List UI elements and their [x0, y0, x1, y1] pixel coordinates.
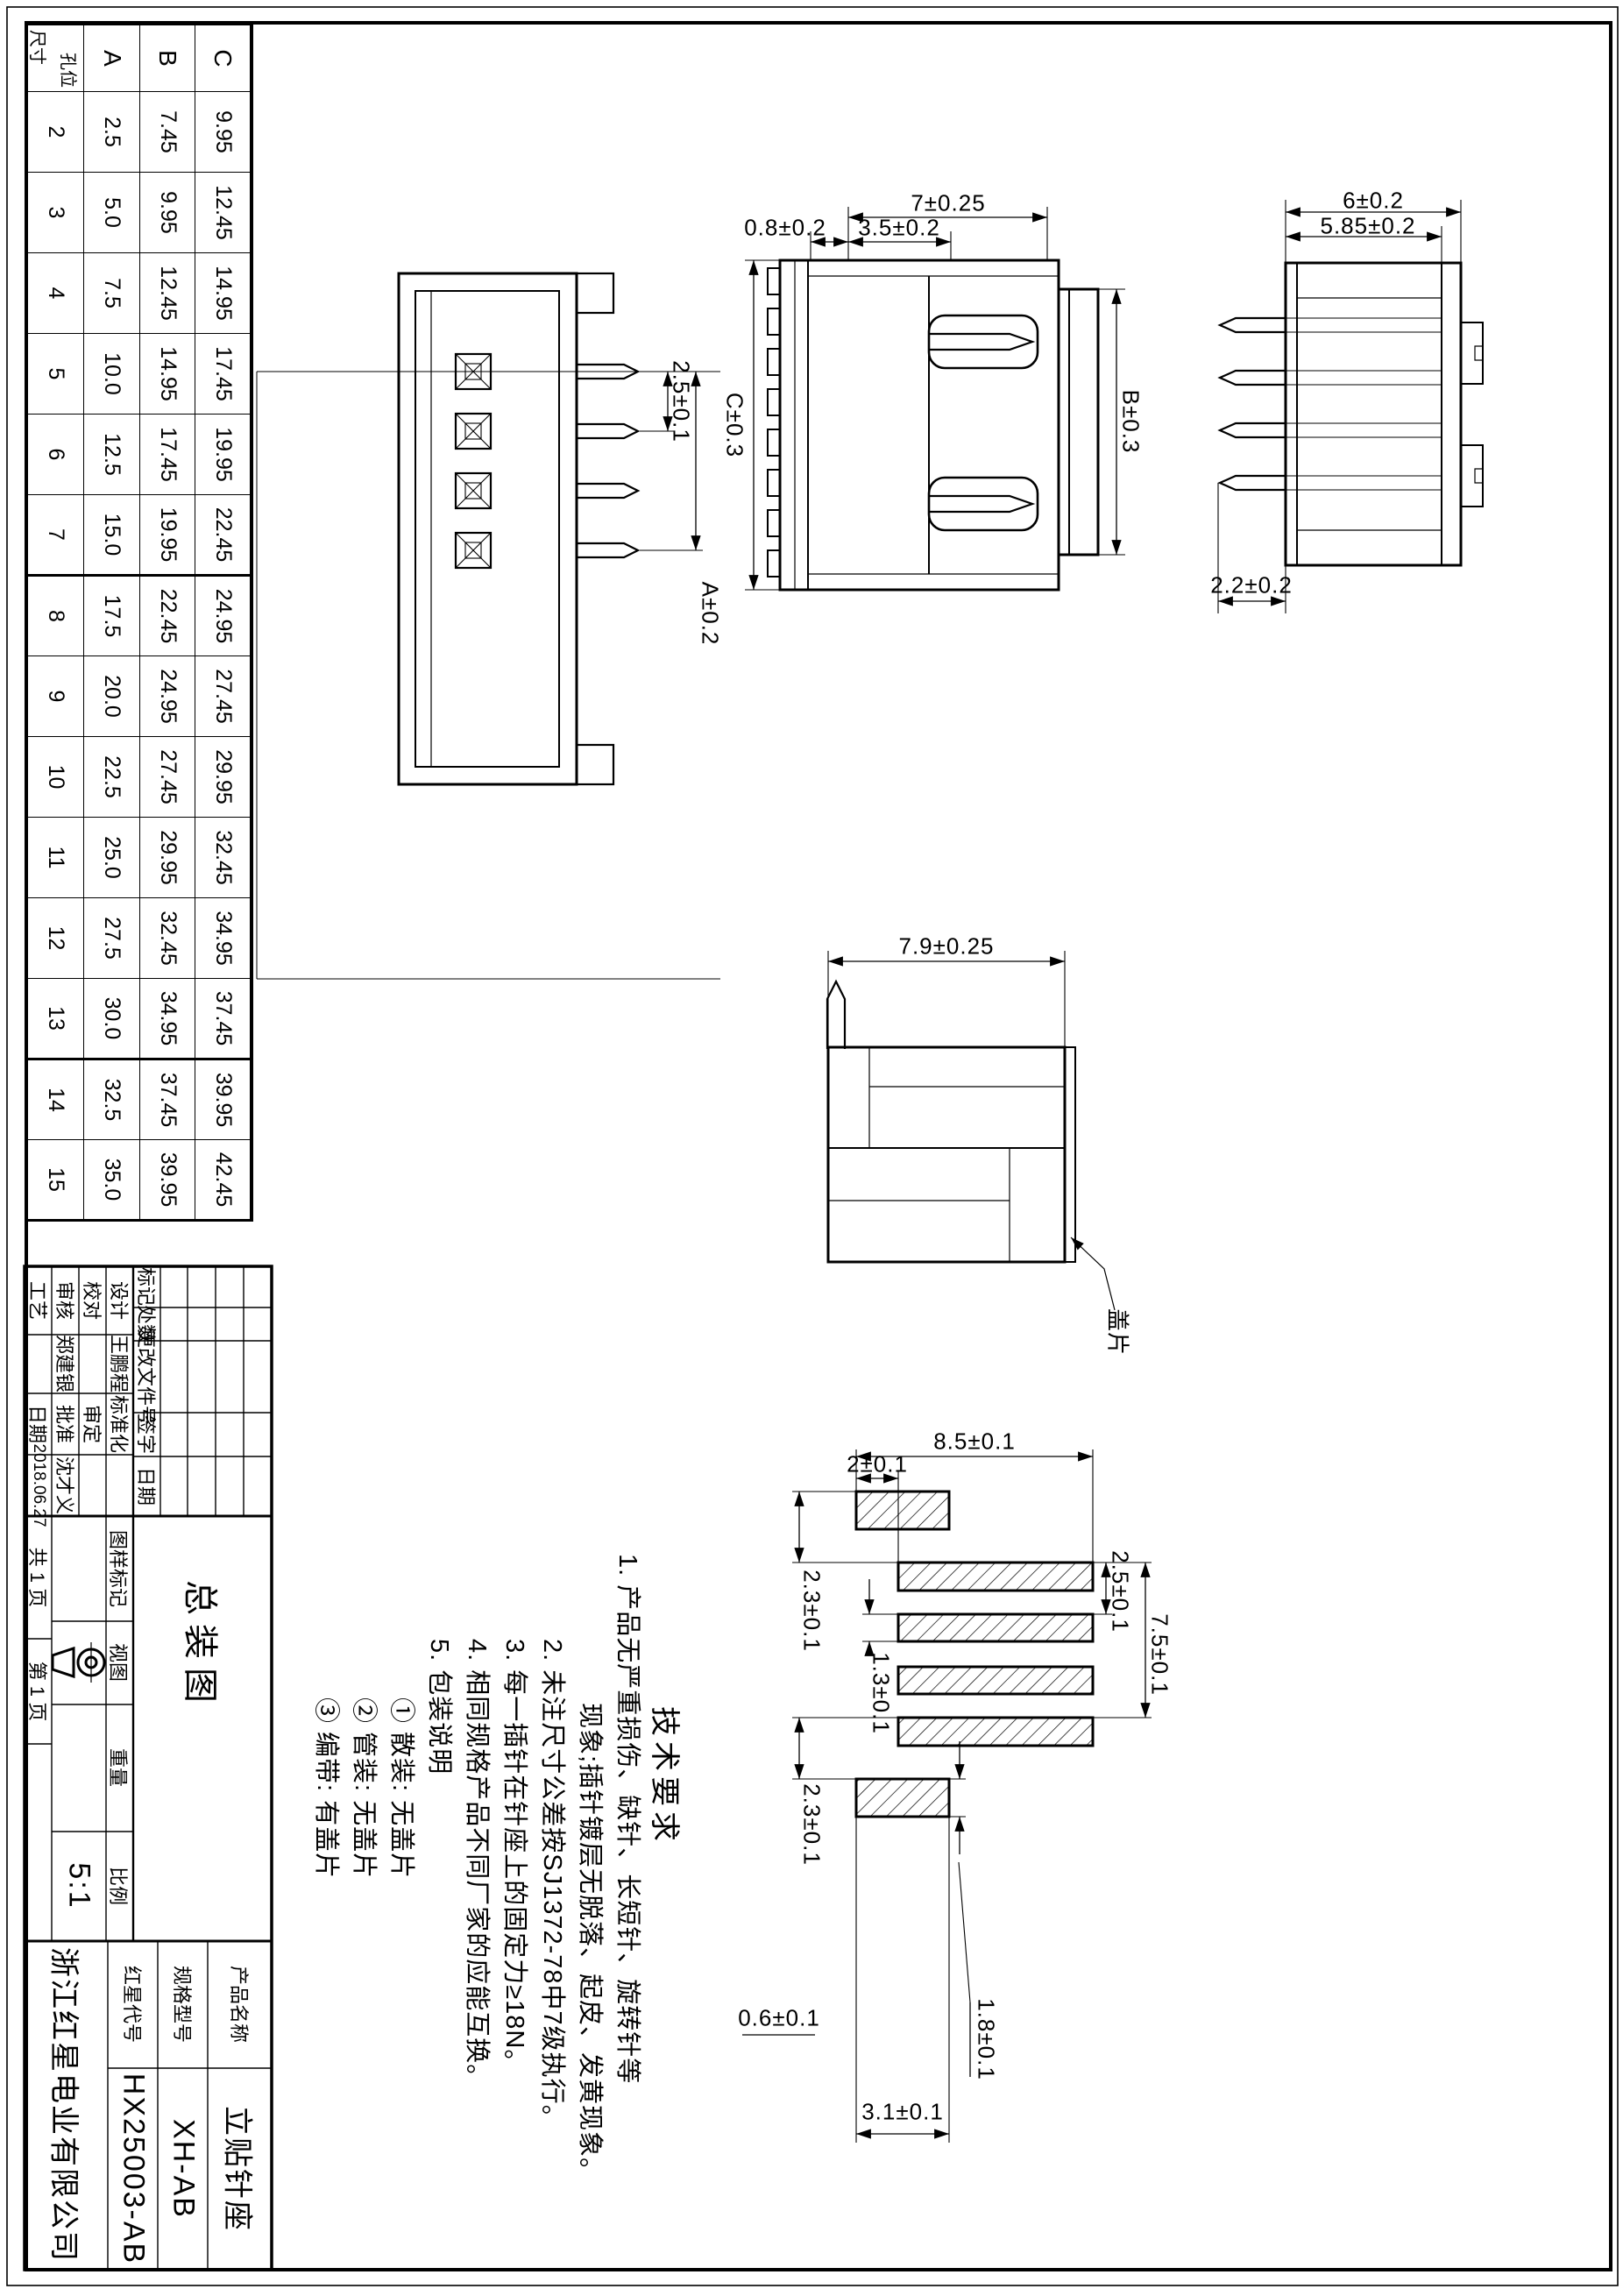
dim-label: 7.9±0.25 — [898, 933, 994, 960]
dims-table-cell: 12.5 — [84, 415, 140, 495]
corner-label-dimension: 尺寸 — [27, 30, 53, 65]
dims-table-cell: 12.45 — [140, 253, 195, 334]
row-label-b: B — [140, 25, 195, 92]
dims-table-cell: 14.95 — [195, 253, 252, 334]
dim-label: 1.3±0.1 — [868, 1652, 895, 1734]
dims-table-cell: 17.45 — [195, 334, 252, 415]
dims-table-cell: 9.95 — [195, 92, 252, 173]
dims-table-cell: 22.45 — [195, 495, 252, 576]
dim-label: 6±0.2 — [1343, 188, 1404, 215]
dims-table-cell: 14.95 — [140, 334, 195, 415]
dims-table-cell: 19.95 — [140, 495, 195, 576]
rev-header-sign: 签字 — [133, 1415, 161, 1454]
dims-table-cell: 29.95 — [140, 818, 195, 898]
dims-table-cell: 2.5 — [84, 92, 140, 173]
design-name: 王鹏程 — [106, 1335, 134, 1392]
dims-table-cell: 39.95 — [195, 1059, 252, 1140]
approve-label: 批准 — [52, 1405, 80, 1443]
dims-table-cell: 27.45 — [195, 656, 252, 737]
dims-table-cell: 15.0 — [84, 495, 140, 576]
mark-label: 图样标记 — [105, 1530, 133, 1607]
table-row-b: B 7.459.9512.4514.9517.4519.9522.4524.95… — [140, 25, 195, 1221]
date-label: 日期 — [25, 1405, 53, 1443]
dim-label: 2.5±0.1 — [668, 360, 695, 443]
drawing-type-title: 总装图 — [178, 1580, 229, 1711]
dim-label: 2.3±0.1 — [798, 1570, 826, 1652]
dims-table-cell: 32.45 — [140, 898, 195, 979]
dim-label: B±0.3 — [1117, 390, 1145, 454]
dims-table-cell: 17.5 — [84, 576, 140, 656]
dim-label: A±0.2 — [697, 582, 724, 646]
date-value: 2018.06.27 — [29, 1443, 48, 1527]
dims-table-cell: 9.95 — [140, 173, 195, 253]
approve2-label: 审定 — [79, 1405, 107, 1443]
dims-table-cell: 32.45 — [195, 818, 252, 898]
mount-pad-left — [856, 1492, 949, 1529]
product-name-label: 产品名称 — [226, 1966, 254, 2043]
dim-label: 2.3±0.1 — [798, 1783, 826, 1866]
review-label: 审核 — [52, 1281, 80, 1320]
dim-label: C±0.3 — [721, 393, 748, 457]
dims-table-cell: 7 — [26, 495, 84, 576]
dims-table-cell: 10.0 — [84, 334, 140, 415]
hole-count-dimension-table: C 9.9512.4514.9517.4519.9522.4524.9527.4… — [25, 23, 254, 1222]
dim-label: 2.2±0.2 — [1210, 572, 1293, 599]
dim-label: 3.5±0.2 — [858, 215, 940, 242]
signal-pad-2 — [898, 1614, 1093, 1641]
projection-symbol-icon — [53, 1642, 104, 1683]
dim-label: 8.5±0.1 — [933, 1428, 1016, 1456]
code-value: HX25003-AB — [117, 2073, 151, 2264]
dims-table-cell: 29.95 — [195, 737, 252, 818]
dim-label: 2.5±0.1 — [1107, 1550, 1134, 1633]
tech-line: 2. 未注尺寸公差按SJ1372-78中7级执行。 — [536, 1639, 573, 2131]
page-num: 第 1 页 — [25, 1662, 53, 1721]
tech-line: 1. 产品无严重损伤、缺针、长短针、旋转针等 — [612, 1554, 648, 2084]
review-name: 郑建银 — [52, 1335, 80, 1392]
dim-label: 7.5±0.1 — [1146, 1613, 1173, 1696]
process-label: 工艺 — [25, 1281, 53, 1320]
dims-table-cell: 24.95 — [140, 656, 195, 737]
dims-table-cell: 7.45 — [140, 92, 195, 173]
dims-table-cell: 15 — [26, 1140, 84, 1221]
approve-name: 沈才义 — [52, 1456, 80, 1514]
dims-table-cell: 7.5 — [84, 253, 140, 334]
view-bottom — [257, 273, 720, 979]
rev-header-docno: 更改文件号 — [133, 1329, 161, 1425]
corner-label-holes: 孔位 — [58, 53, 83, 88]
dims-table-cell: 27.45 — [140, 737, 195, 818]
cover-film-label: 盖片 — [1103, 1308, 1136, 1356]
dims-table-cell: 24.95 — [195, 576, 252, 656]
dim-label: 1.8±0.1 — [973, 1998, 1000, 2080]
dims-table-cell: 3 — [26, 173, 84, 253]
dims-table-cell: 37.45 — [140, 1059, 195, 1140]
dims-table-cell: 5 — [26, 334, 84, 415]
dim-label: 7±0.25 — [911, 190, 985, 217]
check-label: 校对 — [79, 1281, 107, 1320]
table-row-a: A 2.55.07.510.012.515.017.520.022.525.02… — [84, 25, 140, 1221]
dims-table-cell: 12.45 — [195, 173, 252, 253]
dims-table-cell: 35.0 — [84, 1140, 140, 1221]
dims-table-cell: 19.95 — [195, 415, 252, 495]
dims-table-cell: 2 — [26, 92, 84, 173]
tech-line: 4. 相同规格产品不同厂家的应能互换。 — [461, 1639, 498, 2090]
dims-table-cell: 34.95 — [195, 898, 252, 979]
dims-table-cell: 37.45 — [195, 979, 252, 1059]
tech-line: ② 管装: 无盖片 — [348, 1697, 385, 1879]
table-row-c: C 9.9512.4514.9517.4519.9522.4524.9527.4… — [195, 25, 252, 1221]
view-label: 视图 — [105, 1643, 133, 1682]
dim-label: 0.8±0.2 — [744, 215, 826, 242]
signal-pad-3 — [898, 1667, 1093, 1694]
tech-line: 现象;插针镀层无脱落、起皮、发黄现象。 — [574, 1703, 611, 2184]
dims-table-cell: 27.5 — [84, 898, 140, 979]
tech-line: ③ 编带: 有盖片 — [310, 1697, 347, 1879]
dims-table-cell: 13 — [26, 979, 84, 1059]
pages-total: 共 1 页 — [25, 1548, 53, 1607]
tech-line: 5. 包装说明 — [423, 1639, 460, 1775]
dims-table-cell: 30.0 — [84, 979, 140, 1059]
tech-requirements-title: 技术要求 — [646, 1706, 689, 1846]
view-front — [745, 207, 1125, 590]
rev-header-date: 日期 — [133, 1467, 161, 1506]
table-row-positions: 尺寸 孔位 23456789101112131415 — [26, 25, 84, 1221]
dim-label: 0.6±0.1 — [738, 2005, 820, 2032]
row-label-c: C — [195, 25, 252, 92]
dim-label: 5.85±0.2 — [1320, 213, 1415, 240]
dims-table-cell: 25.0 — [84, 818, 140, 898]
tech-line: 3. 每一插针在针座上的固定力≥18N。 — [499, 1639, 535, 2075]
weight-label: 重量 — [105, 1748, 133, 1787]
dims-table-cell: 20.0 — [84, 656, 140, 737]
view-top — [1218, 200, 1483, 613]
rev-header-mark: 标记 — [133, 1267, 161, 1306]
spec-model-label: 规格型号 — [169, 1966, 197, 2043]
dims-table-cell: 32.5 — [84, 1059, 140, 1140]
dim-label: 3.1±0.1 — [861, 2099, 944, 2126]
signal-pad-4 — [898, 1718, 1093, 1746]
dims-table-cell: 5.0 — [84, 173, 140, 253]
screenshot-stage: C 9.9512.4514.9517.4519.9522.4524.9527.4… — [0, 0, 1623, 2296]
tech-line: ① 散装: 无盖片 — [386, 1697, 422, 1879]
dims-table-cell: 6 — [26, 415, 84, 495]
dims-table-cell: 4 — [26, 253, 84, 334]
table-corner: 尺寸 孔位 — [26, 25, 84, 92]
scale-label: 比例 — [105, 1867, 133, 1905]
row-label-a: A — [84, 25, 140, 92]
company-name: 浙江红星电业有限公司 — [46, 1947, 89, 2263]
dims-table-cell: 12 — [26, 898, 84, 979]
dims-table-cell: 17.45 — [140, 415, 195, 495]
dims-table-cell: 22.45 — [140, 576, 195, 656]
dims-table-cell: 42.45 — [195, 1140, 252, 1221]
code-label: 红星代号 — [119, 1966, 147, 2043]
product-name-value: 立贴针座 — [219, 2106, 262, 2232]
dims-table-cell: 9 — [26, 656, 84, 737]
dims-table-cell: 10 — [26, 737, 84, 818]
dims-table-cell: 11 — [26, 818, 84, 898]
view-side-section — [827, 951, 1115, 1310]
dims-table-cell: 34.95 — [140, 979, 195, 1059]
std-label: 标准化 — [106, 1395, 134, 1453]
design-label: 设计 — [106, 1281, 134, 1320]
dims-table-cell: 39.95 — [140, 1140, 195, 1221]
spec-model-value: XH-AB — [167, 2119, 201, 2219]
drawing-sheet: C 9.9512.4514.9517.4519.9522.4524.9527.4… — [0, 0, 1623, 2296]
dims-table-cell: 8 — [26, 576, 84, 656]
dims-table-cell: 14 — [26, 1059, 84, 1140]
dim-label: 2±0.1 — [847, 1451, 908, 1478]
mount-pad-right — [856, 1779, 949, 1817]
signal-pad-1 — [898, 1563, 1093, 1591]
scale-value: 5:1 — [62, 1862, 96, 1909]
dims-table-cell: 22.5 — [84, 737, 140, 818]
